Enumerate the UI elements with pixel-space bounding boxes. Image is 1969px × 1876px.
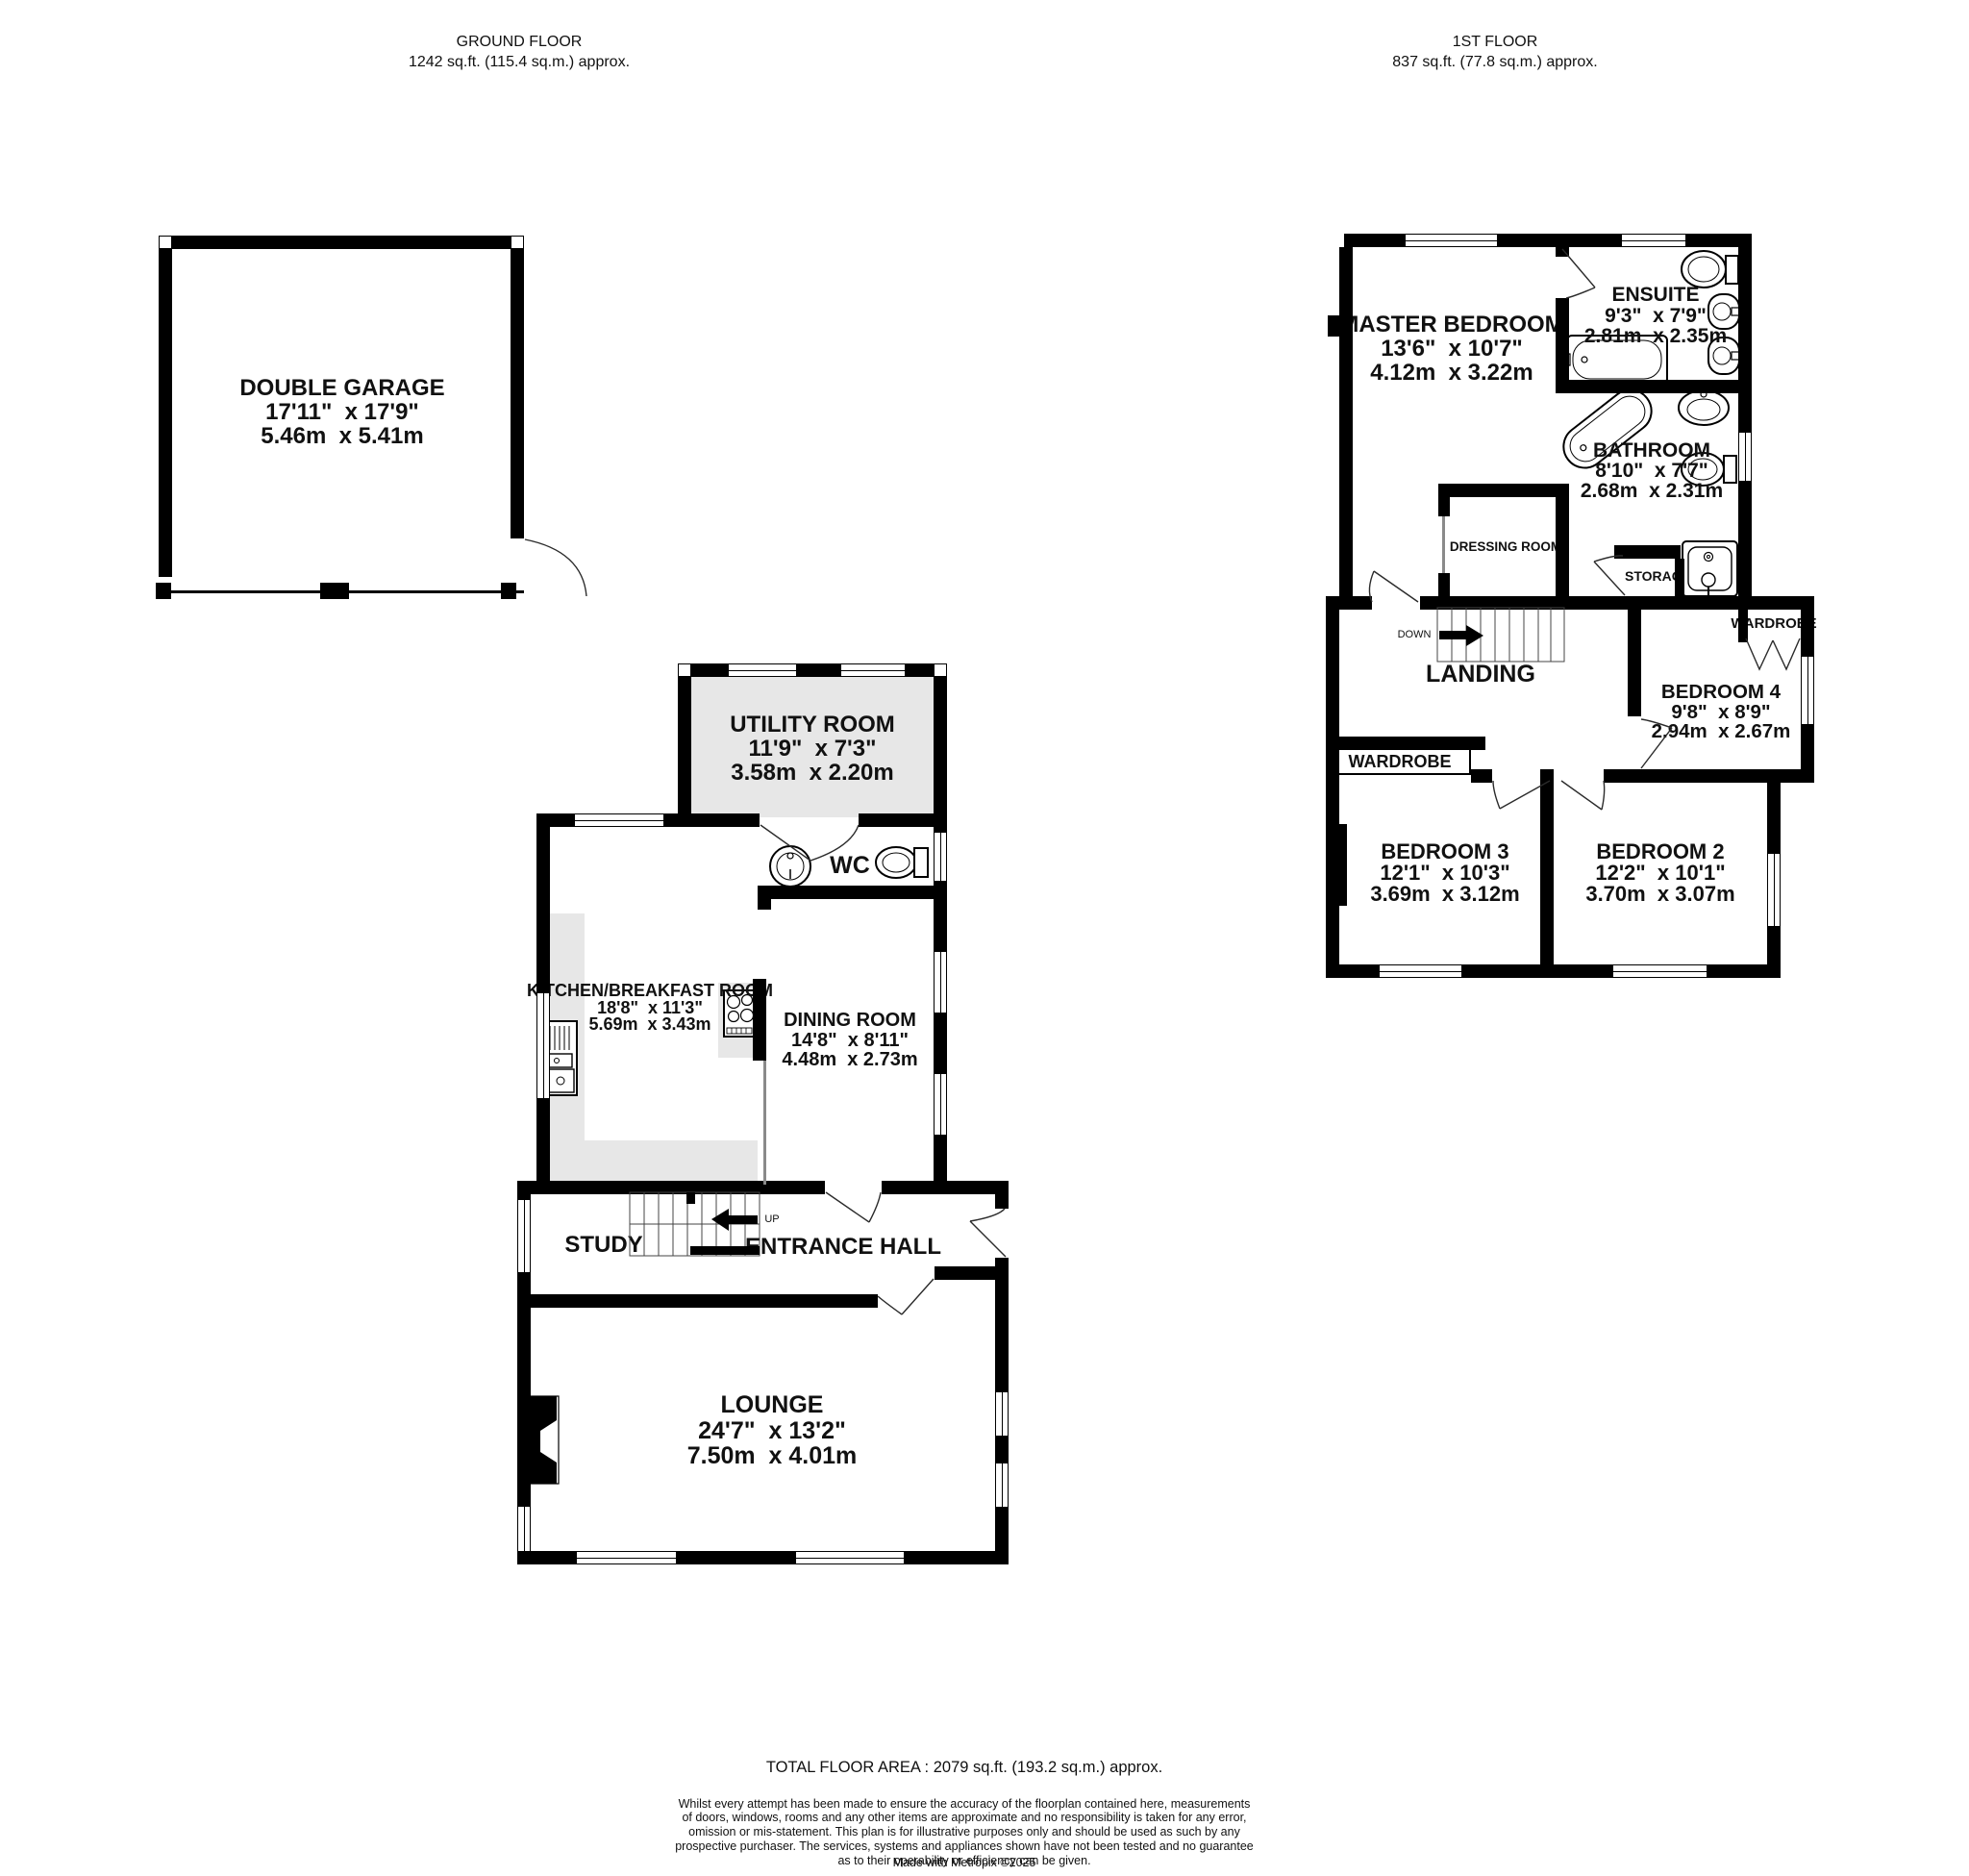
master-landing-door: [1369, 571, 1418, 602]
wc-door: [760, 825, 859, 861]
up-arrow: [711, 1209, 729, 1231]
hall-lounge-door: [878, 1279, 934, 1314]
storage-door: [1594, 556, 1625, 595]
doors-stairs-layer: [0, 0, 1969, 1876]
bedroom4-door: [1641, 719, 1672, 768]
floorplan-canvas: GROUND FLOOR 1242 sq.ft. (115.4 sq.m.) a…: [0, 0, 1969, 1876]
dining-hall-door: [826, 1192, 881, 1222]
stairs-up: [630, 1192, 760, 1256]
ensuite-door: [1562, 249, 1595, 298]
bedroom3-door: [1493, 781, 1550, 809]
front-door: [970, 1209, 1006, 1257]
wardrobe4-bifold-doors: [1746, 638, 1800, 669]
stairs-down: [1437, 608, 1564, 662]
bedroom2-door: [1561, 781, 1605, 810]
garage-door-arc: [525, 539, 586, 596]
